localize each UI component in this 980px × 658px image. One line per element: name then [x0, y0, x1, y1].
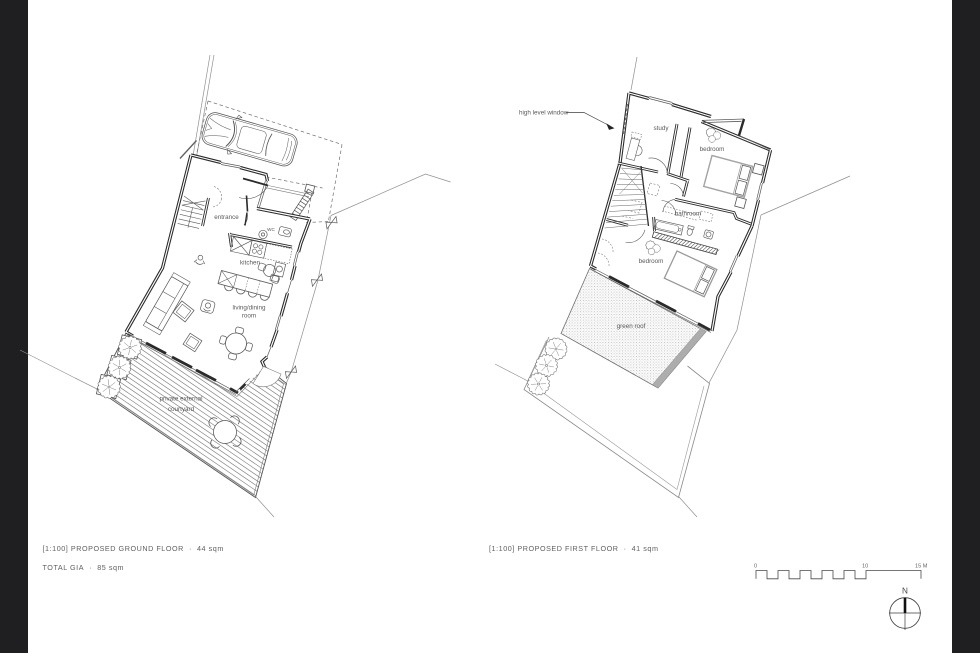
svg-text:[1:100] PROPOSED GROUND FLOOR: [1:100] PROPOSED GROUND FLOOR · 44 sqm	[43, 544, 224, 553]
svg-text:room: room	[242, 313, 256, 320]
svg-text:high level window: high level window	[519, 110, 569, 117]
svg-text:courtyard: courtyard	[168, 406, 195, 413]
svg-text:bedroom: bedroom	[639, 258, 664, 265]
svg-text:[1:100] PROPOSED FIRST FLOOR: [1:100] PROPOSED FIRST FLOOR · 41 sqm	[489, 544, 659, 553]
svg-text:0: 0	[754, 564, 757, 570]
svg-text:kitchen: kitchen	[240, 260, 260, 267]
svg-text:N: N	[902, 587, 908, 596]
svg-text:green roof: green roof	[617, 323, 646, 330]
svg-text:15 M: 15 M	[915, 564, 928, 570]
svg-text:bedroom: bedroom	[700, 146, 725, 153]
svg-text:TOTAL GIA · 85 sqm: TOTAL GIA · 85 sqm	[43, 563, 125, 572]
svg-text:WC: WC	[267, 227, 275, 232]
svg-text:bathroom: bathroom	[675, 211, 702, 218]
svg-text:study: study	[653, 125, 669, 132]
svg-text:entrance: entrance	[214, 214, 239, 221]
svg-text:10: 10	[862, 564, 868, 570]
svg-text:living/dining: living/dining	[233, 305, 266, 312]
svg-text:private external: private external	[159, 396, 202, 403]
